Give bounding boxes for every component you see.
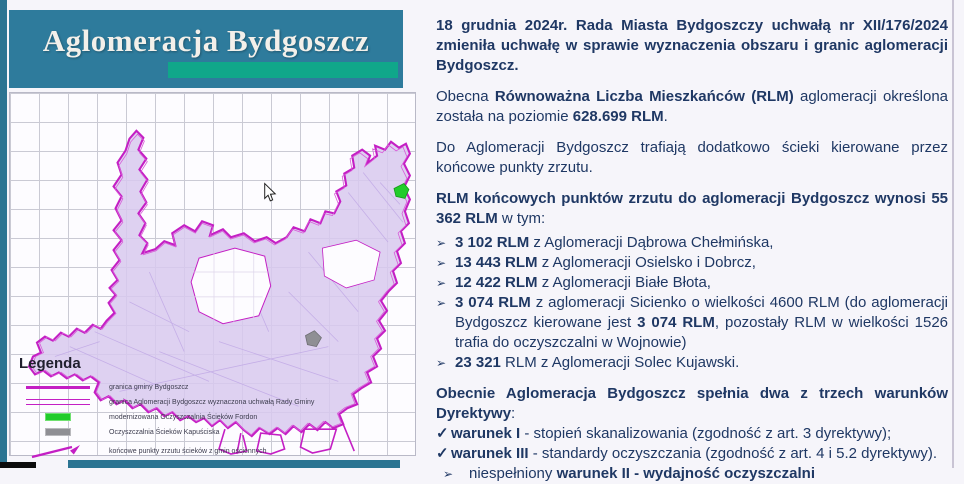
gray-rect-symbol: [19, 428, 97, 436]
paragraph-resolution: 18 grudnia 2024r. Rada Miasta Bydgoszczy…: [436, 16, 948, 76]
title-banner: Aglomeracja Bydgoszcz: [9, 10, 403, 88]
list-item: ➢13 443 RLM z Aglomeracji Osielsko i Dob…: [436, 253, 948, 273]
green-rect-symbol: [19, 413, 97, 421]
legend-title: Legenda: [19, 355, 269, 372]
slide: { "title": "Aglomeracja Bydgoszcz", "gly…: [0, 0, 964, 468]
paragraph-discharge: Do Aglomeracji Bydgoszcz trafiają dodatk…: [436, 138, 948, 178]
arrow-bullet-icon: ➢: [436, 353, 446, 373]
condition-item: ➢niespełniony warunek II - wydajność ocz…: [436, 464, 948, 484]
arrow-bullet-icon: ➢: [436, 253, 446, 273]
paragraph-rlm: Obecna Równoważna Liczba Mieszkańców (RL…: [436, 87, 948, 127]
arrow-symbol: [19, 443, 97, 459]
check-icon: ✓: [436, 424, 449, 444]
left-accent-strip: [0, 0, 7, 468]
arrow-bullet-icon: ➢: [436, 273, 446, 293]
legend-item: modernizowana Oczyszczalnia Ścieków Ford…: [19, 412, 269, 422]
list-item: ➢23 321 RLM z Aglomeracji Solec Kujawski…: [436, 353, 948, 373]
legend-item: Oczyszczalnia Ścieków Kapuściska: [19, 427, 269, 437]
thick-line-symbol: [19, 386, 97, 389]
slide-body-text: 18 grudnia 2024r. Rada Miasta Bydgoszczy…: [436, 16, 948, 484]
bydgoszcz-map: Legenda granica gminy Bydgoszcz granica …: [9, 92, 416, 456]
right-frame-border: [952, 0, 954, 468]
double-line-symbol: [19, 399, 97, 405]
map-legend: Legenda granica gminy Bydgoszcz granica …: [19, 355, 269, 465]
legend-item: końcowe punkty zrzutu ścieków z gmin ośc…: [19, 442, 269, 460]
mouse-cursor-icon: [265, 184, 276, 201]
list-item: ➢12 422 RLM z Aglomeracji Białe Błota,: [436, 273, 948, 293]
page-title: Aglomeracja Bydgoszcz: [9, 23, 403, 59]
list-item: ➢3 074 RLM z aglomeracji Sicienko o wiel…: [436, 293, 948, 353]
check-icon: ✓: [436, 444, 449, 464]
list-item: ➢3 102 RLM z Aglomeracji Dąbrowa Chełmiń…: [436, 233, 948, 253]
arrow-bullet-icon: ➢: [443, 464, 453, 484]
condition-item: ✓warunek I - stopień skanalizowania (zgo…: [436, 424, 948, 444]
legend-item: granica Aglomeracji Bydgoszcz wyznaczona…: [19, 397, 269, 407]
arrow-bullet-icon: ➢: [436, 233, 446, 253]
conditions-header: Obecnie Aglomeracja Bydgoszcz spełnia dw…: [436, 384, 948, 424]
green-accent-bar: [168, 62, 398, 78]
arrow-bullet-icon: ➢: [436, 293, 446, 313]
legend-item: granica gminy Bydgoszcz: [19, 382, 269, 392]
paragraph-discharge-rlm: RLM końcowych punktów zrzutu do aglomera…: [436, 189, 948, 229]
condition-item: ✓warunek III - standardy oczyszczania (z…: [436, 444, 948, 464]
rlm-bullet-list: ➢3 102 RLM z Aglomeracji Dąbrowa Chełmiń…: [436, 233, 948, 373]
